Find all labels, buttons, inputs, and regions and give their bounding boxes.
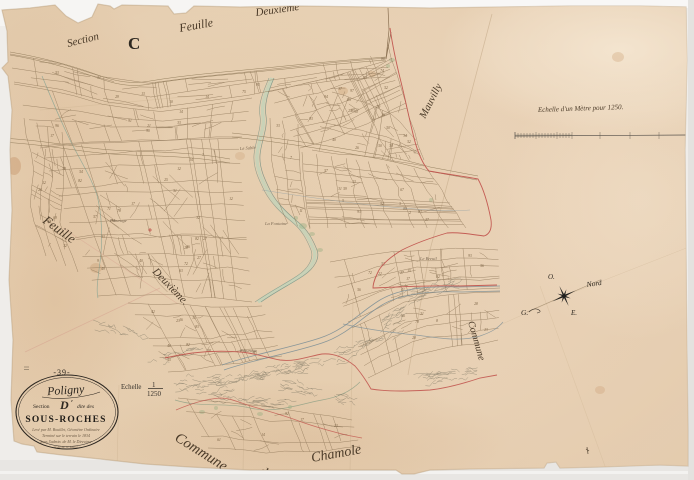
svg-text:30: 30 [363, 76, 367, 80]
svg-text:93: 93 [357, 210, 361, 214]
svg-text:La Fontaine: La Fontaine [264, 221, 287, 226]
svg-text:27: 27 [197, 256, 201, 260]
svg-text:54: 54 [79, 170, 83, 174]
svg-text:42: 42 [151, 310, 155, 314]
svg-text:25: 25 [348, 109, 352, 113]
svg-text:O.: O. [548, 273, 555, 281]
svg-text:E.: E. [570, 309, 577, 317]
svg-text:97: 97 [350, 89, 354, 93]
svg-text:3: 3 [399, 202, 401, 206]
svg-text:45: 45 [167, 358, 171, 362]
svg-text:57: 57 [93, 215, 97, 219]
svg-text:72: 72 [184, 262, 188, 266]
svg-text:82: 82 [78, 179, 82, 183]
svg-text:52: 52 [384, 86, 388, 90]
svg-text:17: 17 [50, 134, 54, 138]
svg-text:89: 89 [403, 207, 407, 211]
svg-text:31: 31 [338, 187, 342, 191]
svg-text:78: 78 [415, 320, 419, 324]
svg-text:37: 37 [338, 87, 342, 91]
svg-text:12: 12 [42, 181, 46, 185]
svg-text:32: 32 [63, 244, 67, 248]
svg-text:16: 16 [381, 113, 385, 117]
svg-text:dite des: dite des [77, 404, 94, 410]
svg-text:32: 32 [196, 216, 200, 220]
svg-text:Pâturage: Pâturage [239, 348, 257, 353]
svg-text:93: 93 [309, 117, 313, 121]
svg-text:52: 52 [407, 140, 411, 144]
svg-text:17: 17 [406, 277, 410, 281]
svg-text:D: D [59, 398, 69, 412]
svg-text:82: 82 [195, 237, 199, 241]
svg-text:33: 33 [177, 121, 181, 125]
svg-text:21: 21 [147, 124, 151, 128]
svg-text:56: 56 [480, 264, 484, 268]
svg-text:16: 16 [179, 318, 183, 322]
svg-text:53: 53 [101, 235, 105, 239]
svg-text:17: 17 [131, 202, 135, 206]
svg-text:23: 23 [334, 424, 338, 428]
svg-text:10: 10 [354, 110, 358, 114]
svg-text:26: 26 [355, 146, 359, 150]
svg-text:87: 87 [418, 210, 422, 214]
svg-text:2: 2 [409, 211, 411, 215]
svg-text:9: 9 [97, 259, 99, 263]
svg-text:28: 28 [474, 302, 478, 306]
svg-text:27: 27 [400, 271, 404, 275]
svg-text:85: 85 [347, 98, 351, 102]
svg-text:67: 67 [400, 188, 404, 192]
svg-text:29: 29 [115, 95, 119, 99]
svg-text:35: 35 [192, 316, 196, 320]
svg-text:82: 82 [186, 343, 190, 347]
svg-text:63: 63 [179, 269, 183, 273]
svg-text:50: 50 [378, 144, 382, 148]
svg-text:61: 61 [217, 438, 221, 442]
svg-text:15: 15 [407, 269, 411, 273]
svg-text:93: 93 [256, 83, 260, 87]
svg-text:26: 26 [376, 105, 380, 109]
svg-text:28: 28 [412, 336, 416, 340]
svg-text:12: 12 [177, 167, 181, 171]
svg-text:7: 7 [290, 156, 292, 160]
svg-text:11: 11 [299, 209, 303, 213]
svg-text:40: 40 [139, 259, 143, 263]
svg-text:46: 46 [167, 344, 171, 348]
svg-text:Le Breuil: Le Breuil [419, 256, 437, 261]
svg-text:8: 8 [436, 319, 438, 323]
svg-text:40: 40 [332, 138, 336, 142]
svg-text:96: 96 [55, 124, 59, 128]
svg-text:83: 83 [195, 325, 199, 329]
svg-text:78: 78 [117, 209, 121, 213]
svg-text:38: 38 [62, 167, 66, 171]
svg-text:Section: Section [33, 404, 50, 410]
svg-text:C: C [128, 34, 140, 53]
svg-text:25: 25 [164, 178, 168, 182]
svg-text:Poligny: Poligny [46, 382, 86, 399]
svg-text:91: 91 [128, 119, 132, 123]
svg-text:et de M. le Maire: et de M. le Maire [54, 445, 79, 449]
svg-text:53: 53 [55, 71, 59, 75]
svg-text:49: 49 [101, 267, 105, 271]
svg-text:14: 14 [205, 95, 209, 99]
svg-text:28: 28 [184, 246, 188, 250]
svg-text:14: 14 [189, 158, 193, 162]
svg-text:26: 26 [38, 188, 42, 192]
svg-text:e: e [71, 398, 73, 403]
svg-text:71: 71 [107, 207, 111, 211]
svg-text:Echelle: Echelle [121, 384, 141, 391]
svg-text:51: 51 [173, 189, 177, 193]
svg-text:75: 75 [242, 90, 246, 94]
svg-text:1250: 1250 [147, 390, 162, 398]
svg-text:23: 23 [484, 328, 488, 332]
svg-text:59: 59 [343, 187, 347, 191]
svg-text:22: 22 [378, 272, 382, 276]
svg-text:58: 58 [207, 349, 211, 353]
svg-text:Pâturage: Pâturage [109, 218, 127, 223]
svg-text:12: 12 [229, 197, 233, 201]
svg-text:52: 52 [380, 202, 384, 206]
svg-text:1: 1 [152, 381, 156, 389]
svg-text:14: 14 [261, 433, 265, 437]
svg-text:Sous l'admin. de M. le Directe: Sous l'admin. de M. le Directeur [40, 439, 92, 444]
svg-text:33: 33 [276, 124, 280, 128]
svg-text:5: 5 [342, 199, 344, 203]
svg-text:82: 82 [436, 275, 440, 279]
svg-text:G.: G. [521, 308, 528, 317]
svg-text:27: 27 [425, 218, 429, 222]
svg-text:57: 57 [324, 169, 328, 173]
svg-text:Terminé sur le terrain le 1834: Terminé sur le terrain le 1834 [42, 433, 90, 438]
svg-text:38: 38 [389, 144, 393, 148]
svg-text:14: 14 [179, 110, 183, 114]
svg-text:27: 27 [203, 237, 207, 241]
svg-text:34: 34 [403, 134, 407, 138]
svg-text:31: 31 [420, 312, 424, 316]
svg-text:72: 72 [368, 271, 372, 275]
svg-text:92: 92 [285, 412, 289, 416]
svg-text:10: 10 [169, 100, 173, 104]
svg-text:SOUS-ROCHES: SOUS-ROCHES [25, 415, 106, 425]
svg-text:90: 90 [146, 129, 150, 133]
svg-text:13: 13 [352, 180, 356, 184]
svg-text:50: 50 [386, 126, 390, 130]
svg-text:74: 74 [380, 69, 384, 73]
svg-text:94: 94 [324, 95, 328, 99]
svg-text:13: 13 [141, 92, 145, 96]
svg-text:56: 56 [357, 288, 361, 292]
svg-text:93: 93 [468, 254, 472, 258]
